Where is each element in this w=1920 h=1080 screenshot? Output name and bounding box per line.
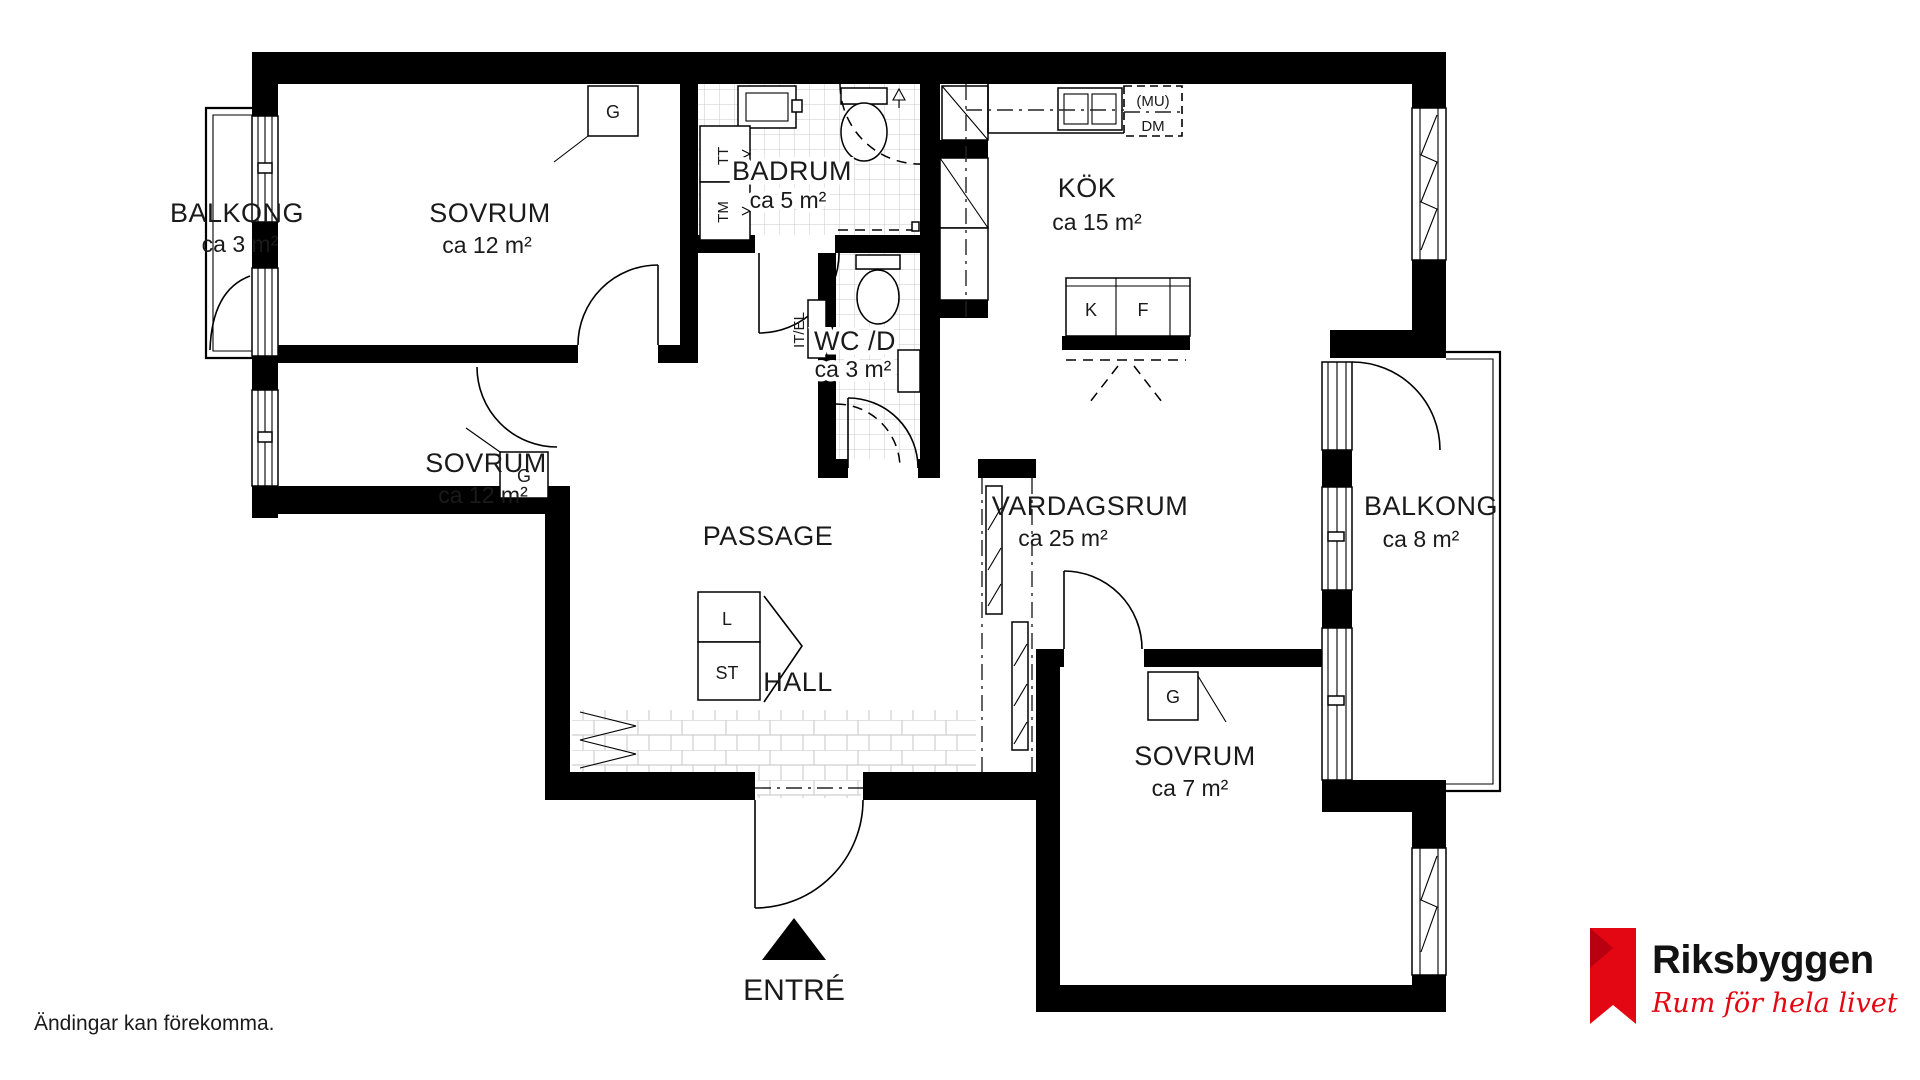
kitchen-shaft <box>940 86 988 300</box>
wardrobe-sovrum1: G <box>554 86 638 162</box>
window-livingroom-1 <box>1322 487 1352 590</box>
entry-tiles <box>757 772 861 798</box>
bathroom-toilet <box>841 88 887 161</box>
balcony-door-left <box>210 268 278 356</box>
k-label: K <box>1085 300 1097 320</box>
balcony-right-rail <box>1352 352 1500 791</box>
label-sovrum1: SOVRUM <box>429 198 551 228</box>
window-sovrum3 <box>1412 848 1446 975</box>
svg-text:L: L <box>722 609 732 629</box>
brand-tagline: Rum för hela livet <box>1652 988 1898 1019</box>
entrance-arrow-icon <box>762 918 826 960</box>
entrance-label: ENTRÉ <box>743 974 845 1007</box>
itel-label: IT/EL <box>791 312 808 348</box>
door-sovrum1 <box>578 265 658 345</box>
label-sovrum2: SOVRUM <box>425 448 547 478</box>
svg-text:G: G <box>1166 687 1180 707</box>
floorplan-page: TT TM IT/EL <box>0 0 1920 1080</box>
brand-name: Riksbyggen <box>1652 940 1898 980</box>
wc-toilet <box>856 255 900 324</box>
label-badrum: BADRUM <box>732 156 852 186</box>
window-kitchen <box>1412 108 1446 260</box>
entrance-marker: ENTRÉ <box>743 918 845 1007</box>
door-entrance <box>755 788 863 908</box>
tm-label: TM <box>715 201 732 223</box>
dm-label: DM <box>1141 118 1164 135</box>
riksbyggen-mark-icon <box>1586 926 1640 1028</box>
svg-text:G: G <box>606 102 620 122</box>
svg-text:ca 3 m²: ca 3 m² <box>202 231 279 257</box>
svg-text:ca 7 m²: ca 7 m² <box>1152 775 1229 801</box>
svg-text:ca 5 m²: ca 5 m² <box>750 187 827 213</box>
label-hall: HALL <box>763 667 833 697</box>
mu-label: (MU) <box>1136 93 1169 110</box>
balcony-door-right <box>1322 362 1440 450</box>
label-passage: PASSAGE <box>703 521 834 551</box>
svg-text:ST: ST <box>715 663 738 683</box>
floorplan-drawing: TT TM IT/EL <box>0 0 1920 1080</box>
dishwasher-box: (MU) DM <box>1124 86 1182 136</box>
wc-sink <box>898 350 920 392</box>
svg-text:ca 15 m²: ca 15 m² <box>1052 209 1142 235</box>
riksbyggen-logo: Riksbyggen Rum för hela livet <box>1586 926 1898 1028</box>
label-balkong-right: BALKONG <box>1364 491 1498 521</box>
window-sovrum2 <box>252 390 278 486</box>
svg-text:ca 12 m²: ca 12 m² <box>438 482 528 508</box>
label-kok: KÖK <box>1058 173 1117 203</box>
wall-top <box>252 52 1446 84</box>
svg-text:ca 3 m²: ca 3 m² <box>815 356 892 382</box>
room-labels: BALKONG ca 3 m² SOVRUM ca 12 m² BADRUM c… <box>170 156 1498 801</box>
label-balkong-left: BALKONG <box>170 198 304 228</box>
label-sovrum3: SOVRUM <box>1134 741 1256 771</box>
disclaimer-text: Ändingar kan förekomma. <box>34 1012 274 1036</box>
svg-text:ca 12 m²: ca 12 m² <box>442 232 532 258</box>
hall-tiles <box>572 710 976 772</box>
bathroom-sink <box>738 86 802 128</box>
door-sovrum2 <box>477 367 557 447</box>
wardrobe-sovrum3: G <box>1148 672 1226 722</box>
door-sovrum3 <box>1064 571 1142 649</box>
wall-left <box>252 52 278 116</box>
svg-text:ca 25 m²: ca 25 m² <box>1018 525 1108 551</box>
label-wcd: WC /D <box>814 326 896 356</box>
window-livingroom-2 <box>1322 628 1352 780</box>
svg-text:ca 8 m²: ca 8 m² <box>1383 526 1460 552</box>
f-label: F <box>1138 300 1149 320</box>
fridge-freezer: K F <box>1062 278 1190 402</box>
sliding-partition <box>982 478 1032 772</box>
label-vardagsrum: VARDAGSRUM <box>992 491 1189 521</box>
tt-label: TT <box>715 147 732 165</box>
